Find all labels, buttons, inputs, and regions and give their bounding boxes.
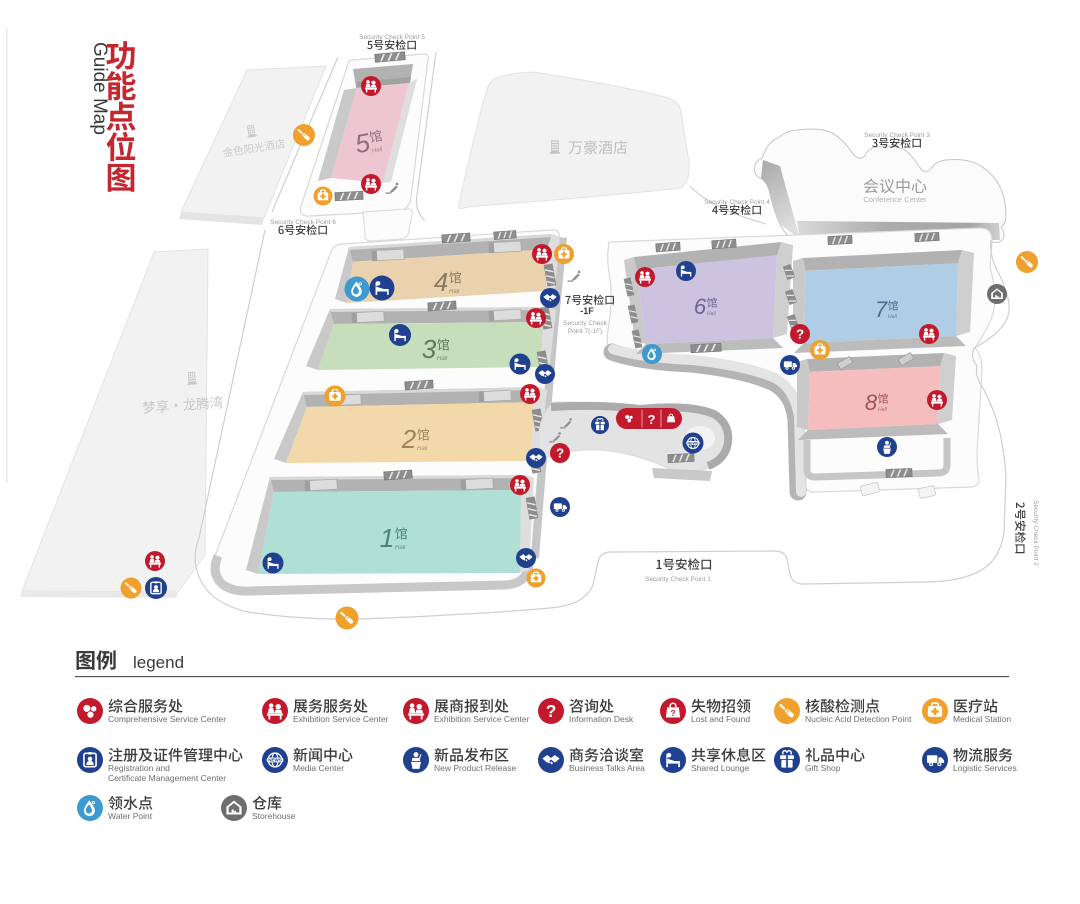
svg-text:4: 4	[434, 267, 448, 297]
svg-text:1: 1	[380, 523, 394, 553]
svg-text:Water Point: Water Point	[108, 811, 153, 821]
svg-text:Point 7(-1F): Point 7(-1F)	[568, 328, 602, 335]
svg-text:3: 3	[422, 334, 437, 364]
svg-text:Exhibition Service Center: Exhibition Service Center	[434, 714, 530, 724]
svg-text:Conference Center: Conference Center	[863, 195, 927, 204]
svg-text:Hall: Hall	[437, 356, 448, 362]
svg-text:Hall: Hall	[395, 545, 406, 551]
svg-text:-1F: -1F	[580, 306, 594, 316]
svg-text:Security Check Point 2: Security Check Point 2	[1032, 500, 1039, 566]
svg-text:Registration and: Registration and	[108, 763, 170, 773]
svg-text:7: 7	[875, 297, 888, 322]
svg-text:Guide Map: Guide Map	[89, 42, 110, 135]
svg-text:Certificate Management Center: Certificate Management Center	[108, 773, 226, 783]
svg-text:Shared Lounge: Shared Lounge	[691, 763, 749, 773]
svg-text:8: 8	[865, 390, 878, 415]
svg-text:Lost and Found: Lost and Found	[691, 714, 750, 724]
svg-text:Media Center: Media Center	[293, 763, 344, 773]
svg-text:Business Talks Area: Business Talks Area	[569, 763, 645, 773]
svg-text:2: 2	[401, 424, 417, 454]
svg-text:Hall: Hall	[878, 407, 888, 413]
svg-text:Exhibition Service Center: Exhibition Service Center	[293, 714, 389, 724]
svg-text:Logistic Services: Logistic Services	[953, 763, 1017, 773]
svg-text:Storehouse: Storehouse	[252, 811, 296, 821]
svg-text:6: 6	[694, 294, 707, 319]
svg-text:Security Check Point 1: Security Check Point 1	[645, 576, 711, 583]
svg-text:Information Desk: Information Desk	[569, 714, 634, 724]
svg-text:Security Check Point 4: Security Check Point 4	[704, 199, 770, 206]
svg-text:Hall: Hall	[449, 289, 460, 295]
svg-text:Hall: Hall	[707, 311, 717, 317]
svg-text:Security Check Point 5: Security Check Point 5	[359, 34, 425, 41]
svg-text:Nucleic Acid Detection Point: Nucleic Acid Detection Point	[805, 714, 912, 724]
svg-text:Medical Station: Medical Station	[953, 714, 1011, 724]
svg-text:Security Check Point 3: Security Check Point 3	[864, 132, 930, 139]
svg-text:Security Check: Security Check	[563, 320, 607, 327]
svg-text:Hall: Hall	[888, 314, 898, 320]
svg-text:Security Check Point 6: Security Check Point 6	[270, 219, 336, 226]
svg-text:Comprehensive Service Center: Comprehensive Service Center	[108, 714, 226, 724]
svg-text:New Product Release: New Product Release	[434, 763, 516, 773]
svg-text:Gift Shop: Gift Shop	[805, 763, 841, 773]
svg-text:Hall: Hall	[417, 446, 428, 452]
svg-text:legend: legend	[133, 653, 184, 672]
svg-text:?: ?	[648, 412, 656, 427]
